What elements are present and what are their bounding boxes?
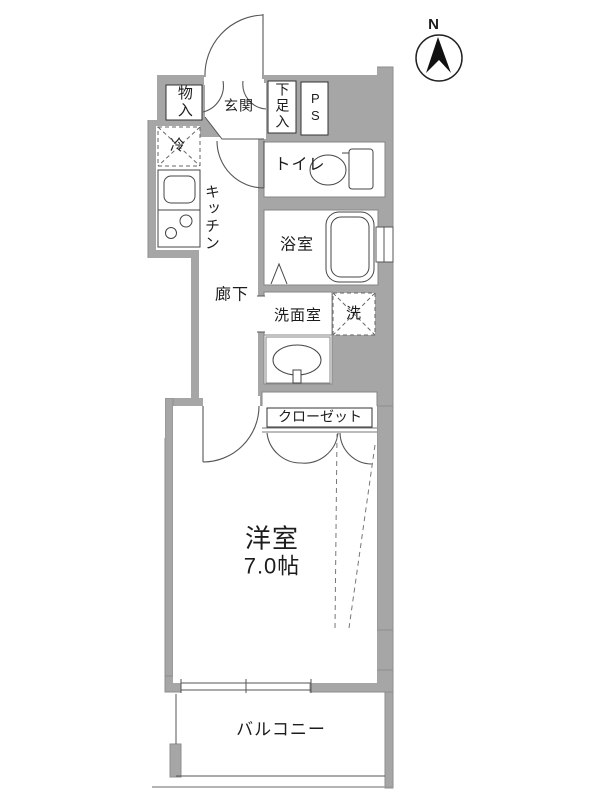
exterior-left-mid	[120, 258, 191, 398]
washer-label: 洗	[346, 306, 362, 322]
closet-label: クローゼット	[278, 410, 362, 425]
main-room-label: 洋室	[245, 525, 299, 552]
floor-plan-drawing	[0, 0, 600, 800]
bathroom-label: 浴室	[280, 238, 314, 255]
gap-washroom-door	[257, 296, 265, 332]
kitchen-stove	[158, 210, 200, 247]
pipe-space-label: PS	[308, 91, 322, 125]
washbasin-tap	[293, 370, 301, 383]
wall-balcony-right	[385, 692, 393, 788]
kitchen-label: キッチン	[203, 184, 219, 252]
toilet-tank	[349, 149, 373, 189]
storage-label: 物入	[176, 85, 192, 119]
toilet-label: トイレ	[274, 158, 325, 175]
refrigerator-label: 冷	[170, 138, 186, 154]
shoe-cabinet-label: 下足入	[275, 82, 290, 130]
floor-plan: 物入 玄関 下足入 PS 冷 キッチン トイレ 浴室 廊下 洗面室 洗 クローゼ…	[0, 0, 600, 800]
washroom-label: 洗面室	[274, 308, 322, 324]
compass	[416, 35, 462, 81]
gap-room-door	[203, 396, 260, 407]
floor-corridor	[199, 137, 258, 398]
wall-room-left	[165, 398, 173, 692]
hallway-label: 廊下	[215, 288, 249, 305]
entrance-label: 玄関	[224, 99, 254, 114]
north-label: N	[428, 17, 440, 33]
gap-entrance-door	[204, 73, 264, 85]
balcony-label: バルコニー	[236, 721, 326, 739]
exterior-topleft	[120, 75, 157, 120]
main-room-size-label: 7.0帖	[244, 554, 301, 577]
wall-balcony-divider	[170, 744, 181, 777]
exterior-left-low	[120, 398, 165, 438]
